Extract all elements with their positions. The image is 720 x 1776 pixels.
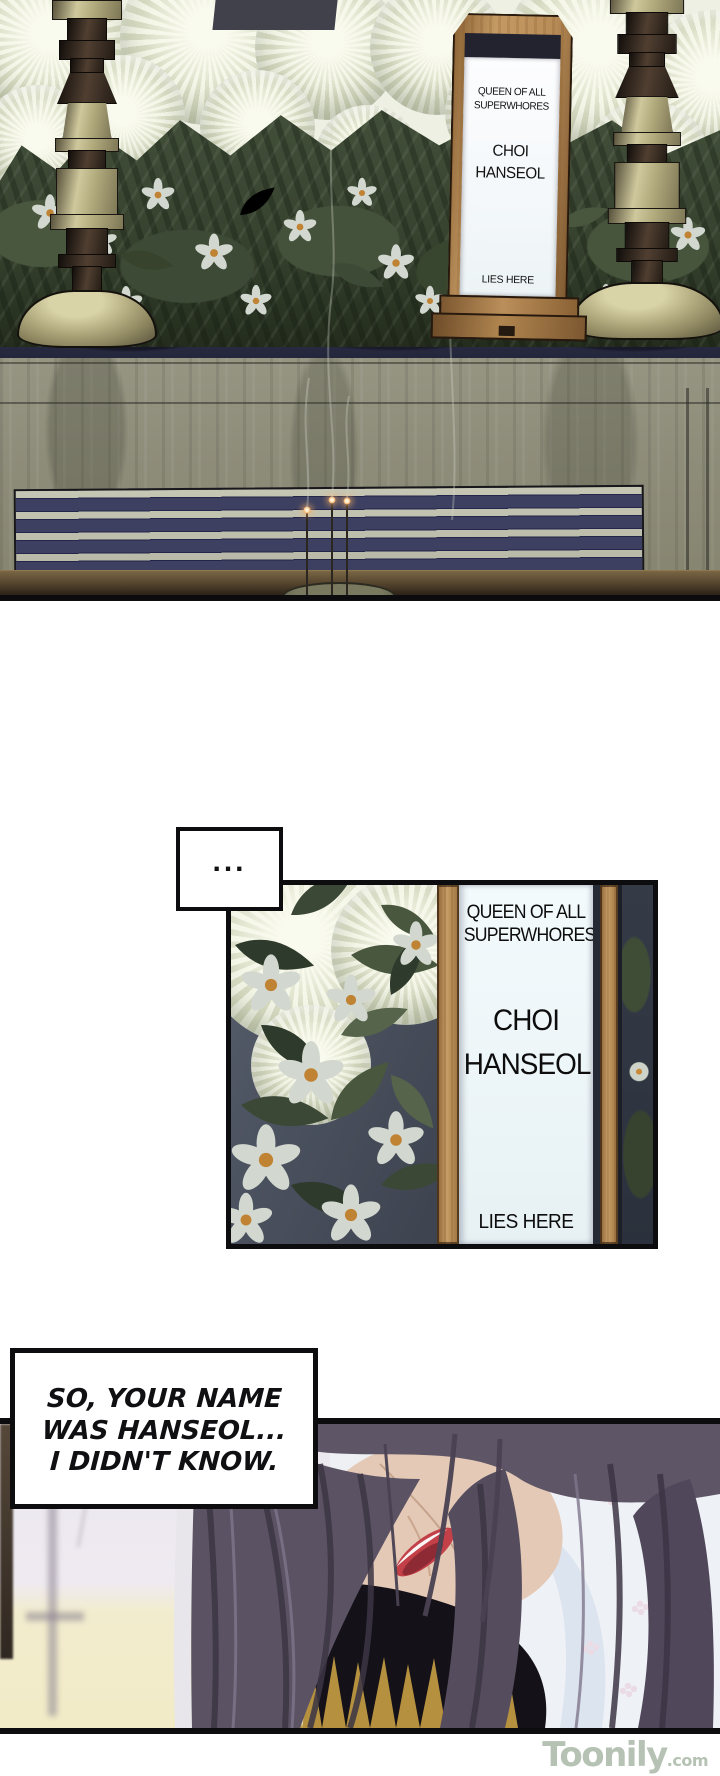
tablet-epithet: QUEEN OF ALL SUPERWHORES	[466, 85, 558, 114]
candlestick-segment	[627, 144, 667, 164]
candlestick-segment	[59, 40, 115, 60]
closeup-tablet-paper: QUEEN OF ALL SUPERWHORES CHOI HANSEOL LI…	[459, 885, 593, 1244]
candlestick-segment	[629, 52, 665, 68]
ellipsis-text: ...	[212, 845, 246, 879]
tablet-footer: LIES HERE	[460, 273, 556, 287]
closeup-foliage-right	[622, 885, 653, 1244]
candlestick-segment	[56, 168, 118, 218]
memorial-tablet: QUEEN OF ALL SUPERWHORES CHOI HANSEOL LI…	[447, 13, 578, 336]
closeup-wood-frame-right	[600, 885, 618, 1244]
closeup-wood-frame-left	[437, 885, 459, 1244]
ellipsis-bubble: ...	[176, 827, 283, 911]
tablet-paper: QUEEN OF ALL SUPERWHORES CHOI HANSEOL LI…	[459, 57, 560, 297]
candlestick-right	[568, 0, 720, 342]
tablet-base-notch	[499, 326, 515, 336]
candlestick-segment	[68, 150, 106, 170]
panel-tablet-closeup: QUEEN OF ALL SUPERWHORES CHOI HANSEOL LI…	[226, 880, 658, 1249]
candlestick-base	[570, 282, 720, 340]
candlestick-segment	[626, 12, 668, 36]
narration-line: SO, YOUR NAME	[46, 1384, 283, 1416]
candlestick-segment	[617, 34, 676, 54]
candlestick-left	[12, 0, 162, 352]
closeup-epithet: QUEEN OF ALL SUPERWHORES	[464, 901, 589, 947]
candlestick-segment	[67, 18, 107, 42]
tablet-name: CHOI HANSEOL	[464, 140, 556, 185]
narration-box: SO, YOUR NAME WAS HANSEOL... I DIDN'T KN…	[10, 1348, 318, 1509]
candlestick-segment	[621, 96, 674, 136]
watermark-tld: .com	[667, 1751, 708, 1770]
narration-line: I DIDN'T KNOW.	[49, 1447, 279, 1479]
candlestick-base	[17, 290, 157, 348]
toonily-watermark: Toonily.com	[0, 1735, 708, 1776]
webtoon-page: QUEEN OF ALL SUPERWHORES CHOI HANSEOL LI…	[0, 0, 720, 1776]
candlestick-segment	[52, 0, 122, 20]
candlestick-segment	[615, 66, 679, 98]
closeup-name: CHOI HANSEOL	[464, 999, 589, 1086]
closeup-frame-shadow	[593, 885, 600, 1244]
narration-line: WAS HANSEOL...	[41, 1416, 287, 1448]
watermark-brand: Toonily	[542, 1735, 667, 1775]
candlestick-segment	[625, 222, 670, 250]
candlestick-segment	[614, 162, 680, 212]
candlestick-segment	[70, 58, 104, 74]
closeup-footer: LIES HERE	[462, 1211, 589, 1234]
candlestick-segment	[62, 102, 112, 142]
candlestick-segment	[66, 228, 108, 256]
panel-altar-wide: QUEEN OF ALL SUPERWHORES CHOI HANSEOL LI…	[0, 0, 720, 601]
candlestick-segment	[57, 72, 117, 104]
panel-border	[0, 595, 720, 601]
